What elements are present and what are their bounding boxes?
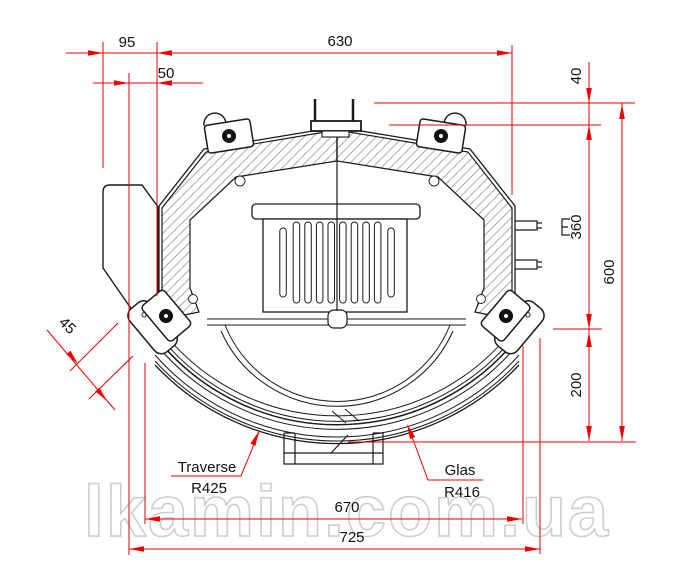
label-glas-radius: R416 — [444, 484, 480, 501]
wall-notch — [477, 295, 486, 304]
dim-725: 725 — [339, 529, 364, 546]
label-glas: Glas — [445, 462, 476, 479]
dim-40: 40 — [568, 68, 585, 85]
mount-bracket-top-left — [202, 108, 254, 154]
right-side-pins — [515, 219, 570, 269]
grate-bottom-tab — [328, 310, 347, 328]
wall-notch — [189, 295, 198, 304]
dim-630: 630 — [327, 33, 352, 50]
wall-notch — [429, 176, 439, 186]
front-glass-traverse-arcs — [155, 321, 519, 444]
grate-top-bar — [252, 204, 420, 219]
grate-assembly — [252, 204, 420, 328]
dim-50: 50 — [158, 65, 175, 82]
label-traverse: Traverse — [178, 459, 237, 476]
dim-600: 600 — [601, 259, 618, 284]
wall-notch — [235, 176, 245, 186]
technical-drawing-page: lkamin.com.ua — [0, 0, 694, 588]
dim-670: 670 — [334, 499, 359, 516]
label-traverse-radius: R425 — [191, 480, 227, 497]
glass-arc — [155, 336, 519, 425]
flue-bracket — [311, 99, 361, 137]
dim-200: 200 — [568, 372, 585, 397]
mount-bracket-top-right — [416, 108, 468, 154]
technical-drawing: lkamin.com.ua — [0, 0, 694, 588]
inner-floor-arcs — [221, 325, 453, 406]
dim-360: 360 — [568, 214, 585, 239]
dim-45: 45 — [55, 314, 79, 338]
dim-95: 95 — [119, 34, 136, 51]
